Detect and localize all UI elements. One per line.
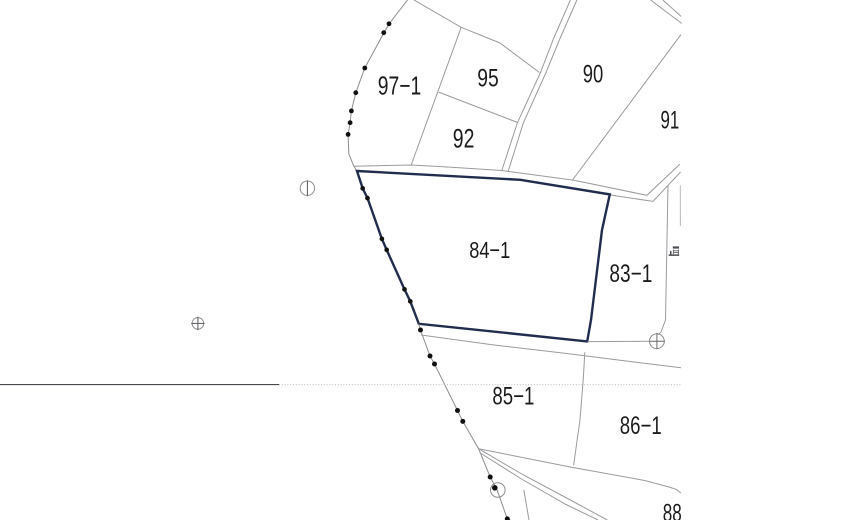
- svg-text:90: 90: [583, 60, 604, 88]
- svg-text:95: 95: [477, 65, 499, 93]
- svg-text:97−1: 97−1: [378, 70, 422, 100]
- svg-text:88: 88: [663, 500, 682, 520]
- svg-text:84−1: 84−1: [469, 237, 510, 263]
- svg-text:83−1: 83−1: [609, 260, 652, 288]
- svg-text:85−1: 85−1: [492, 382, 534, 410]
- svg-text:86−1: 86−1: [620, 412, 662, 440]
- svg-text:92: 92: [453, 124, 475, 154]
- svg-text:91: 91: [661, 106, 680, 134]
